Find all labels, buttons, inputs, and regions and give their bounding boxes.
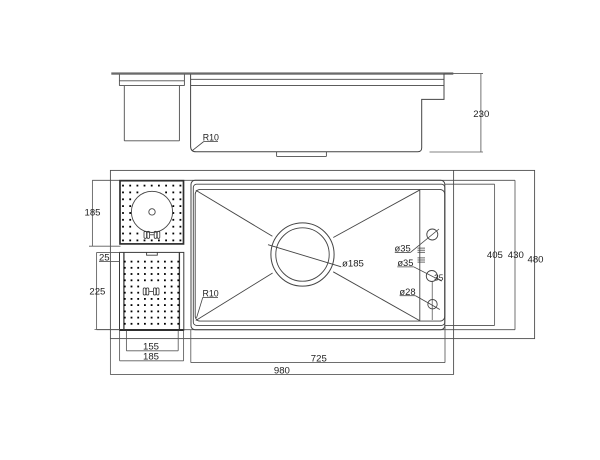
svg-text:ø35: ø35 <box>397 257 413 268</box>
svg-text:ø185: ø185 <box>342 258 364 269</box>
svg-text:R10: R10 <box>203 288 219 298</box>
svg-text:430: 430 <box>508 250 524 261</box>
svg-text:ø28: ø28 <box>399 286 415 297</box>
svg-text:35: 35 <box>434 273 444 283</box>
svg-text:185: 185 <box>143 352 159 363</box>
svg-text:185: 185 <box>84 207 100 218</box>
svg-text:R10: R10 <box>203 132 219 142</box>
svg-text:225: 225 <box>89 286 105 297</box>
svg-text:480: 480 <box>527 254 543 265</box>
svg-text:230: 230 <box>473 109 489 120</box>
svg-text:ø35: ø35 <box>395 243 411 254</box>
svg-text:405: 405 <box>487 250 503 261</box>
svg-text:980: 980 <box>274 366 290 377</box>
svg-text:725: 725 <box>311 353 327 364</box>
svg-text:25: 25 <box>99 253 110 264</box>
